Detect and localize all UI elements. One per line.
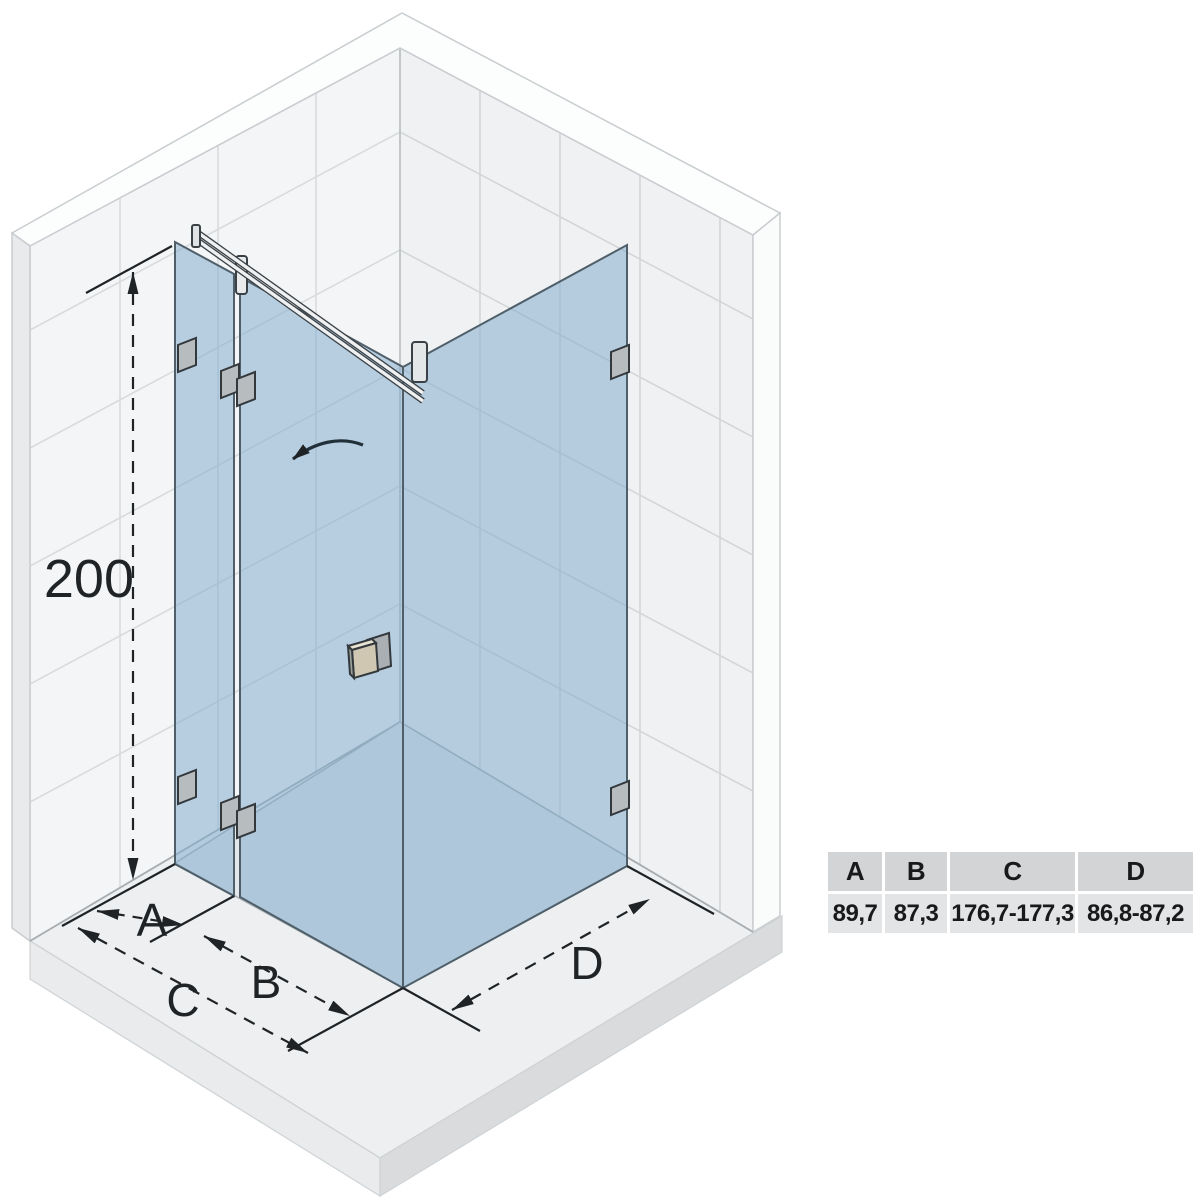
label-dim-d: D xyxy=(570,937,603,989)
door-glass xyxy=(240,277,403,988)
table-value-d: 86,8-87,2 xyxy=(1078,894,1193,933)
table-value-c: 176,7-177,3 xyxy=(950,894,1075,933)
support-bar-wall-cap xyxy=(192,225,200,247)
door-handle-knob-front xyxy=(352,643,378,678)
right-wall-edge xyxy=(753,213,780,932)
side-panel-glass xyxy=(403,245,627,988)
wall-bracket-top xyxy=(178,338,196,372)
label-dim-b: B xyxy=(251,956,282,1008)
table-header-d: D xyxy=(1078,852,1193,891)
table-header-b: B xyxy=(885,852,947,891)
label-dim-c: C xyxy=(166,974,199,1026)
shower-enclosure-diagram: 200 A B C D xyxy=(0,0,1200,1200)
diagram-page: 200 A B C D A B C D 89,7 87,3 176,7-177,… xyxy=(0,0,1200,1200)
support-bar-end-clamp xyxy=(412,342,427,382)
label-height-200: 200 xyxy=(44,549,134,609)
table-value-a: 89,7 xyxy=(828,894,882,933)
side-bracket-bottom xyxy=(611,781,629,815)
dimension-table: A B C D 89,7 87,3 176,7-177,3 86,8-87,2 xyxy=(828,852,1193,933)
table-value-b: 87,3 xyxy=(885,894,947,933)
wall-bracket-bottom xyxy=(178,770,196,804)
table-header-a: A xyxy=(828,852,882,891)
label-dim-a: A xyxy=(137,894,168,946)
table-header-c: C xyxy=(950,852,1075,891)
left-wall-edge xyxy=(12,233,30,941)
side-bracket-top xyxy=(611,345,629,379)
